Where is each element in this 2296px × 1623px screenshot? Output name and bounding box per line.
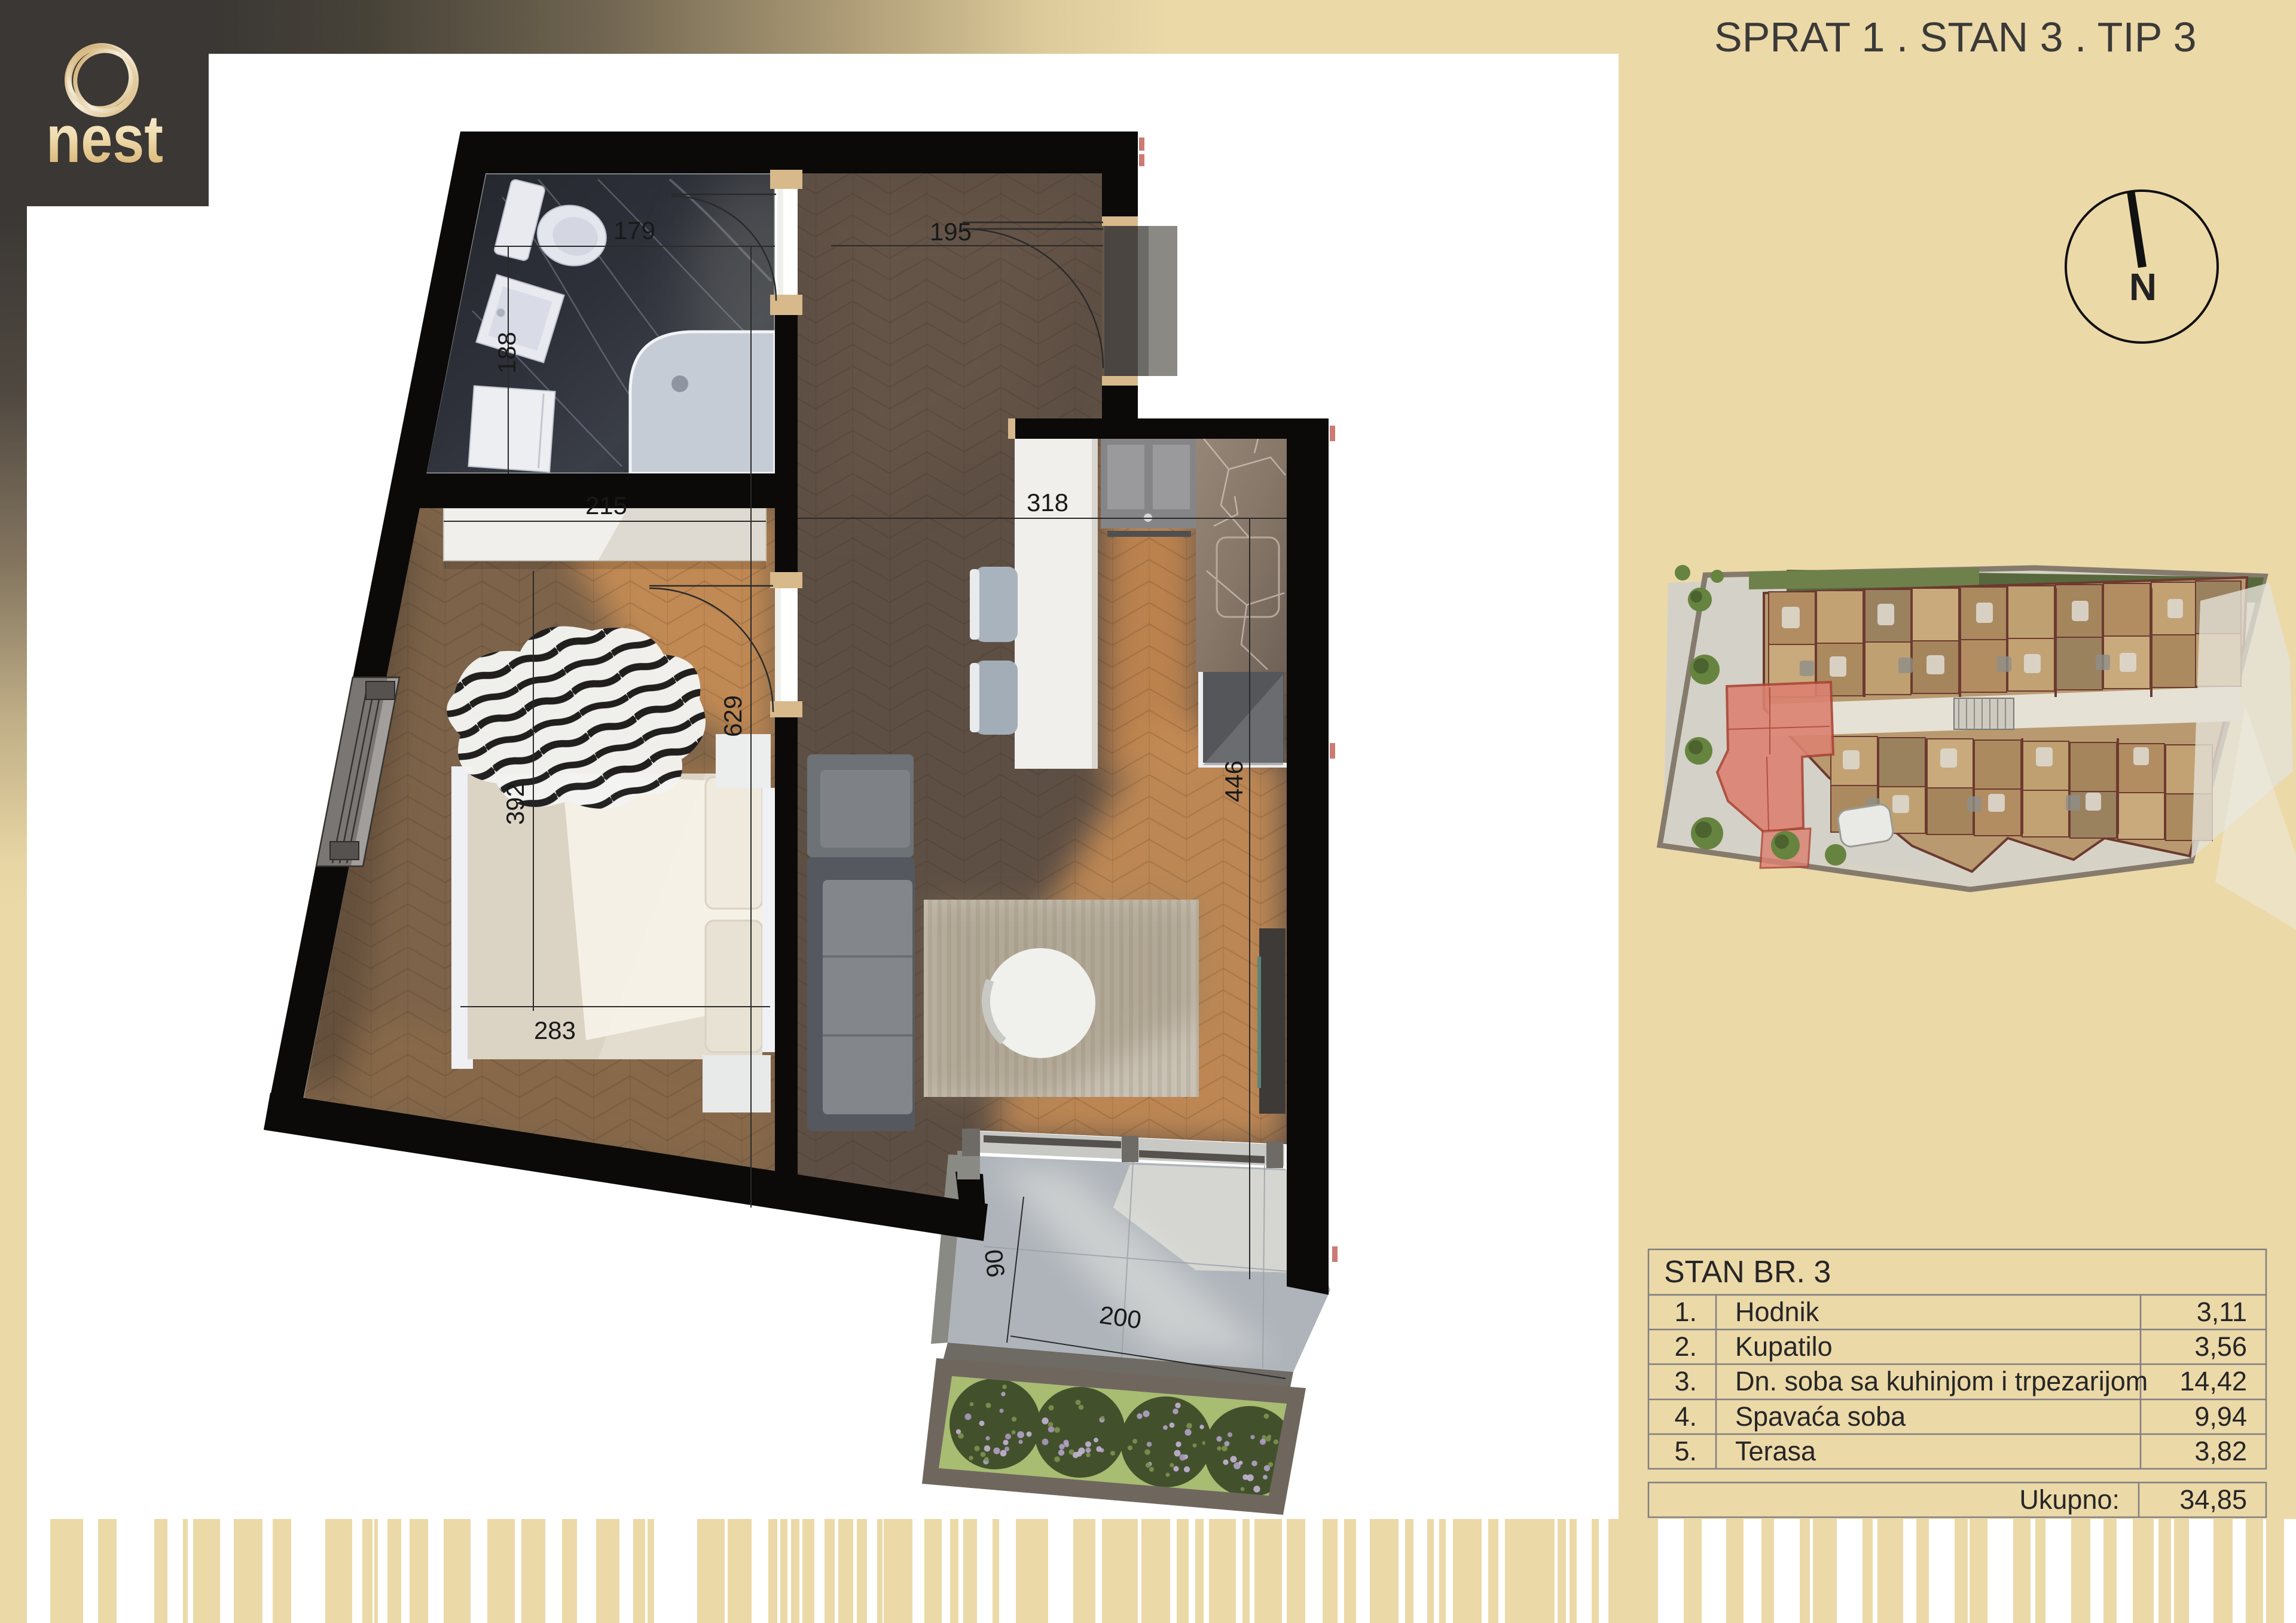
svg-text:200: 200: [1098, 1300, 1143, 1334]
svg-text:STAN BR. 3: STAN BR. 3: [1664, 1255, 1831, 1289]
svg-text:9,94: 9,94: [2194, 1401, 2247, 1432]
svg-text:Hodnik: Hodnik: [1735, 1297, 1819, 1327]
svg-text:3,56: 3,56: [2194, 1331, 2247, 1362]
svg-text:nest: nest: [46, 102, 163, 176]
svg-text:34,85: 34,85: [2179, 1484, 2247, 1515]
svg-text:4.: 4.: [1674, 1401, 1697, 1432]
svg-text:215: 215: [585, 491, 627, 519]
svg-text:195: 195: [930, 218, 972, 246]
svg-text:3,82: 3,82: [2194, 1436, 2247, 1466]
svg-text:SPRAT 1 . STAN 3 . TIP 3: SPRAT 1 . STAN 3 . TIP 3: [1714, 14, 2197, 60]
svg-text:392: 392: [501, 783, 529, 825]
svg-text:283: 283: [534, 1016, 576, 1044]
svg-text:2.: 2.: [1674, 1331, 1697, 1362]
svg-text:3.: 3.: [1674, 1366, 1697, 1396]
svg-text:14,42: 14,42: [2179, 1366, 2247, 1396]
svg-text:1.: 1.: [1674, 1297, 1697, 1327]
svg-text:179: 179: [613, 216, 655, 244]
svg-text:629: 629: [719, 695, 747, 737]
svg-text:446: 446: [1220, 760, 1248, 802]
svg-text:90: 90: [979, 1248, 1010, 1279]
svg-text:Ukupno:: Ukupno:: [2019, 1484, 2120, 1515]
svg-text:3,11: 3,11: [2197, 1297, 2247, 1327]
svg-text:Terasa: Terasa: [1735, 1436, 1816, 1466]
svg-text:N: N: [2129, 265, 2157, 308]
svg-text:188: 188: [493, 332, 521, 374]
svg-text:5.: 5.: [1674, 1436, 1697, 1466]
svg-text:Spavaća soba: Spavaća soba: [1735, 1401, 1906, 1432]
svg-text:318: 318: [1027, 488, 1068, 516]
svg-text:Kupatilo: Kupatilo: [1735, 1331, 1833, 1362]
svg-text:Dn. soba sa kuhinjom i trpezar: Dn. soba sa kuhinjom i trpezarijom: [1735, 1366, 2148, 1396]
